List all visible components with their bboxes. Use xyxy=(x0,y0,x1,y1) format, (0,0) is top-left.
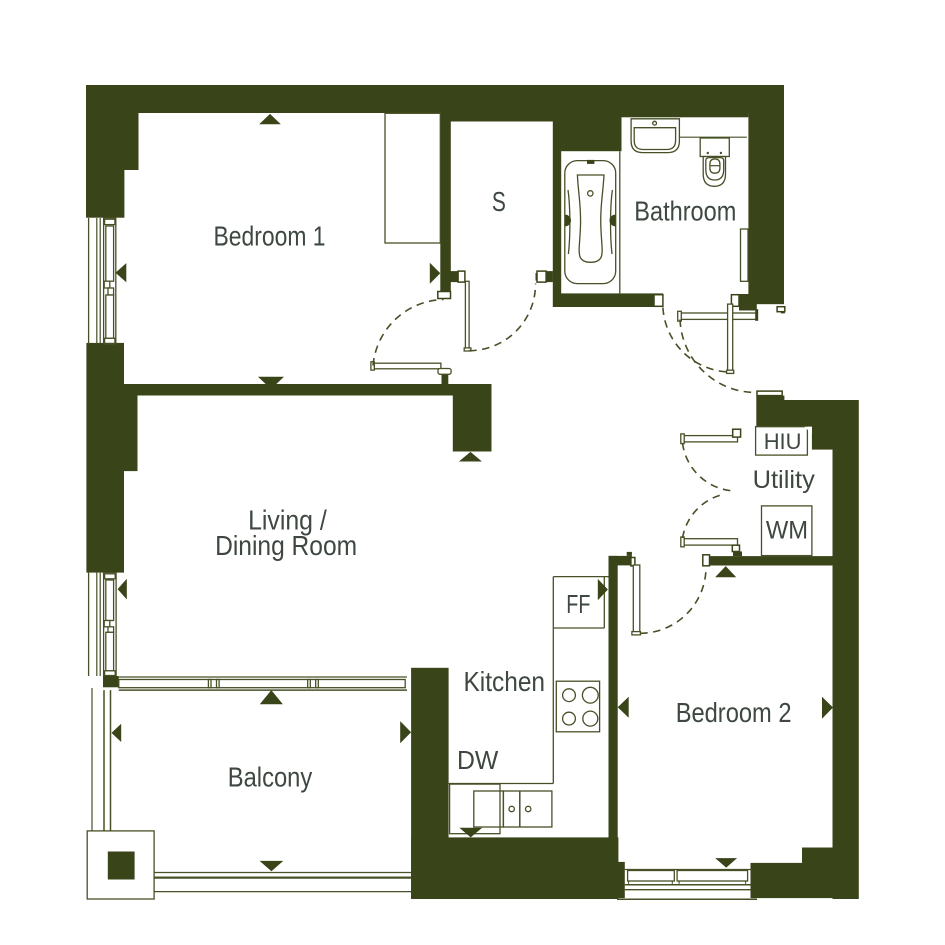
svg-text:Balcony: Balcony xyxy=(228,761,312,792)
svg-text:Bathroom: Bathroom xyxy=(634,196,736,227)
svg-text:WM: WM xyxy=(766,517,808,545)
svg-text:HIU: HIU xyxy=(764,429,802,454)
svg-text:DW: DW xyxy=(457,745,499,775)
svg-text:Kitchen: Kitchen xyxy=(464,666,546,697)
svg-text:Dining Room: Dining Room xyxy=(215,530,357,561)
svg-text:S: S xyxy=(492,186,506,217)
svg-text:FF: FF xyxy=(566,589,590,619)
svg-text:Utility: Utility xyxy=(753,466,816,494)
svg-text:Bedroom 1: Bedroom 1 xyxy=(214,221,326,252)
svg-text:Bedroom 2: Bedroom 2 xyxy=(676,697,792,728)
